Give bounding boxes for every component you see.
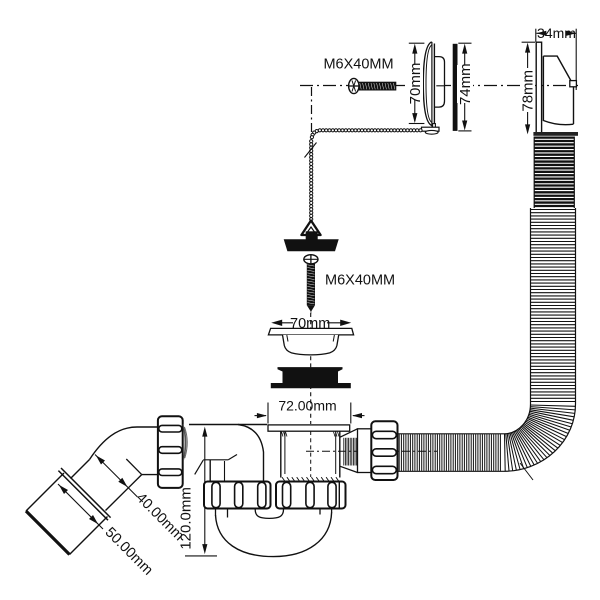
svg-text:74mm: 74mm	[457, 63, 474, 105]
svg-text:M6X40MM: M6X40MM	[325, 273, 395, 289]
svg-text:72.00mm: 72.00mm	[278, 397, 336, 413]
svg-text:34mm: 34mm	[537, 25, 576, 41]
svg-text:70mm: 70mm	[407, 63, 424, 105]
svg-text:78mm: 78mm	[519, 70, 536, 112]
svg-text:120.0mm: 120.0mm	[178, 487, 195, 550]
svg-text:M6X40MM: M6X40MM	[323, 57, 393, 73]
